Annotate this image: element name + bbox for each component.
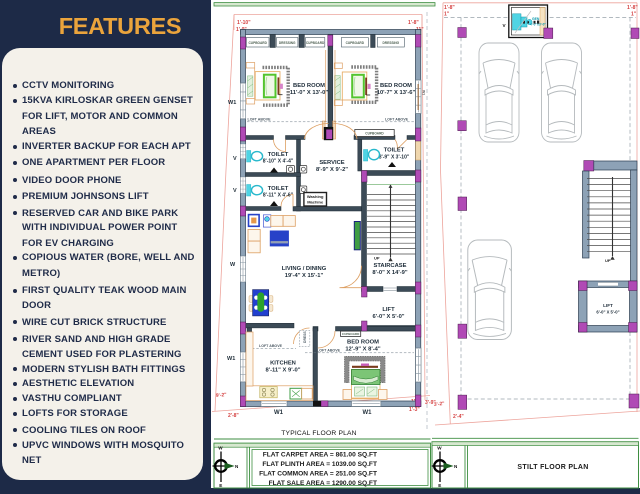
svg-text:2'-4": 2'-4" [453,414,464,420]
svg-text:UP: UP [374,256,380,261]
svg-text:DRESSING: DRESSING [279,41,296,45]
svg-text:LOFT ABOVE: LOFT ABOVE [259,344,283,348]
svg-text:Machine: Machine [307,200,324,205]
svg-text:KITCHEN: KITCHEN [270,361,296,367]
svg-text:W1: W1 [228,100,236,106]
svg-text:CUPBOARD: CUPBOARD [306,41,325,45]
svg-text:W1: W1 [422,90,426,95]
svg-text:12'-9" X 8'-4": 12'-9" X 8'-4" [345,347,381,353]
svg-text:LIFT: LIFT [382,307,395,313]
svg-text:1": 1" [444,12,450,18]
svg-text:SERVICE: SERVICE [319,160,344,166]
svg-text:W1: W1 [363,410,373,416]
svg-text:1": 1" [631,12,637,18]
svg-text:LOFT ABOVE: LOFT ABOVE [385,118,409,122]
svg-text:2'-8": 2'-8" [228,413,239,419]
svg-text:8'-11" X 9'-0": 8'-11" X 9'-0" [265,368,300,374]
svg-text:19'-4" X 15'-1": 19'-4" X 15'-1" [285,273,324,279]
svg-text:8'-10" X 4'-4": 8'-10" X 4'-4" [263,159,294,165]
svg-text:W1: W1 [227,356,235,362]
svg-text:V: V [503,23,507,28]
svg-text:FLAT CARPET AREA = 861.00 SQ: FLAT CARPET AREA = 861.00 SQ.FT [263,452,377,459]
svg-text:6'-0" X 5'-0": 6'-0" X 5'-0" [596,310,619,315]
svg-text:3'-2": 3'-2" [434,401,446,408]
svg-text:STAIRCASE: STAIRCASE [373,263,406,269]
svg-text:8'-11" X 4'-6": 8'-11" X 4'-6" [263,193,294,199]
svg-text:CUPBOARD: CUPBOARD [248,41,267,45]
svg-text:V: V [233,156,237,162]
svg-text:W: W [230,262,236,268]
svg-text:TOILET: TOILET [384,148,405,154]
svg-text:11'-0" X 13'-0": 11'-0" X 13'-0" [290,90,328,96]
svg-text:Washing: Washing [307,194,324,199]
svg-text:8'-9" X 9'-2": 8'-9" X 9'-2" [316,167,348,173]
svg-text:CUPBOARD: CUPBOARD [365,132,384,136]
svg-text:6'-0" X 5'-0": 6'-0" X 5'-0" [372,314,404,320]
svg-text:BED ROOM: BED ROOM [347,340,379,346]
svg-text:TYPICAL FLOOR PLAN: TYPICAL FLOOR PLAN [281,430,356,437]
svg-text:W1: W1 [274,410,284,416]
svg-text:FLAT COMMON AREA = 251.00 SQ.: FLAT COMMON AREA = 251.00 SQ.FT [259,471,377,478]
svg-text:TOILET: TOILET [268,186,289,192]
svg-text:1'-3": 1'-3" [409,407,420,413]
svg-text:TOILET: TOILET [268,152,289,158]
svg-text:BED ROOM: BED ROOM [293,83,325,89]
svg-text:LIFT: LIFT [603,303,613,308]
svg-text:1'-8": 1'-8" [444,5,455,11]
svg-text:1'-10": 1'-10" [237,20,251,26]
svg-text:DRESSING: DRESSING [382,41,399,45]
svg-text:GEN: GEN [532,17,540,21]
svg-text:8'-0" X 14'-9": 8'-0" X 14'-9" [372,270,408,276]
svg-text:LIVING / DINING: LIVING / DINING [282,266,327,272]
svg-text:DRESS: DRESS [303,331,307,343]
svg-text:CUPBOARD: CUPBOARD [346,41,365,45]
svg-text:1'-8": 1'-8" [627,5,638,11]
svg-text:FLAT SALE AREA = 1290.00 SQ.: FLAT SALE AREA = 1290.00 SQ.FT [269,480,377,487]
svg-text:STILT FLOOR PLAN: STILT FLOOR PLAN [517,464,588,471]
svg-text:CUPBOARD: CUPBOARD [342,332,360,336]
svg-text:8'-9" X 3'-10": 8'-9" X 3'-10" [379,155,410,161]
svg-text:V: V [233,188,237,194]
svg-text:10'-7" X 13'-6": 10'-7" X 13'-6" [377,90,416,96]
svg-text:BED ROOM: BED ROOM [380,83,412,89]
svg-text:FLAT PLINTH AREA = 1039.00 SQ.: FLAT PLINTH AREA = 1039.00 SQ.FT [262,461,377,468]
svg-text:9'-2": 9'-2" [216,392,228,399]
svg-text:LOFT ABOVE: LOFT ABOVE [248,118,272,122]
svg-text:UP: UP [605,258,611,263]
svg-text:1'-8": 1'-8" [408,20,419,26]
svg-text:LOFT ABOVE: LOFT ABOVE [317,349,341,353]
